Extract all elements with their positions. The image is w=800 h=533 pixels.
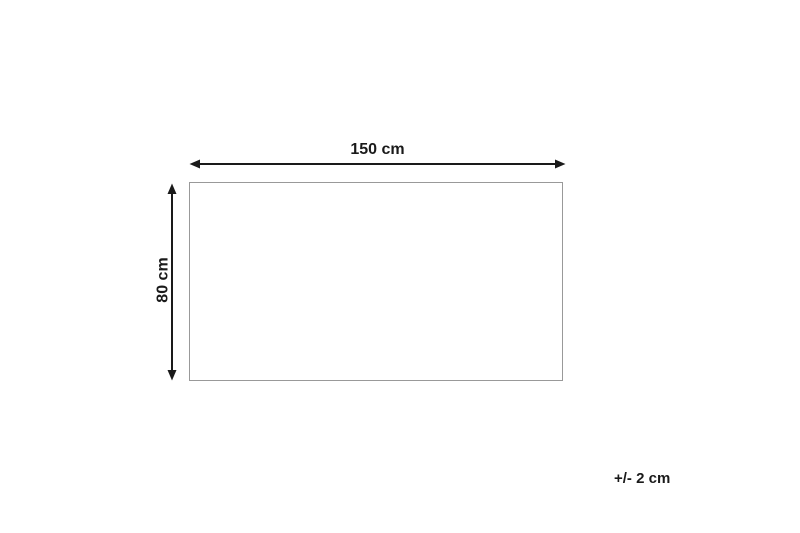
height-dimension-label: 80 cm (154, 257, 173, 302)
dimension-diagram: 150 cm 80 cm +/- 2 cm (0, 0, 800, 533)
product-outline-rect (189, 182, 563, 381)
arrowhead-left-icon (190, 160, 201, 169)
width-dimension-label: 150 cm (189, 140, 566, 159)
arrowhead-down-icon (168, 370, 177, 381)
arrowhead-right-icon (555, 160, 566, 169)
tolerance-label: +/- 2 cm (614, 470, 670, 488)
arrowhead-up-icon (168, 184, 177, 195)
